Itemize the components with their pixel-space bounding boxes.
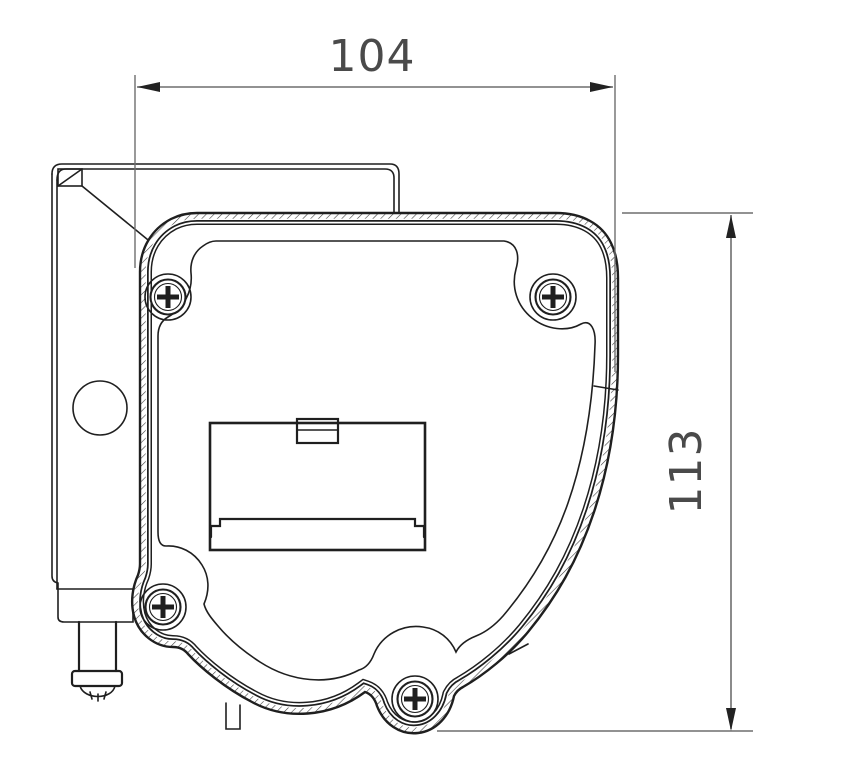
phillips-screw-top-right (536, 280, 571, 315)
rail-inner-edge (57, 169, 394, 212)
arrowhead-left-icon (137, 82, 160, 92)
phillips-screw-top-left (151, 280, 186, 315)
drawing-svg: 104 113 (0, 0, 847, 768)
width-dimension-label: 104 (329, 31, 416, 82)
arrowhead-right-icon (590, 82, 613, 92)
height-dimension-label: 113 (661, 428, 712, 515)
arrowhead-up-icon (726, 215, 736, 238)
bracket-hole (73, 381, 127, 435)
bracket-fold-line (82, 186, 153, 244)
phillips-screw-bottom (398, 682, 433, 717)
mounting-bracket (52, 169, 153, 622)
notch-diagonal (58, 169, 82, 186)
adjustment-pin (72, 622, 122, 701)
bottom-tab (226, 703, 240, 729)
pin-flange (72, 671, 122, 686)
arrowhead-down-icon (726, 708, 736, 731)
bracket-outer-edge (52, 174, 133, 622)
phillips-screw-bottom-left (146, 590, 181, 625)
technical-drawing-canvas: 104 113 (0, 0, 847, 768)
